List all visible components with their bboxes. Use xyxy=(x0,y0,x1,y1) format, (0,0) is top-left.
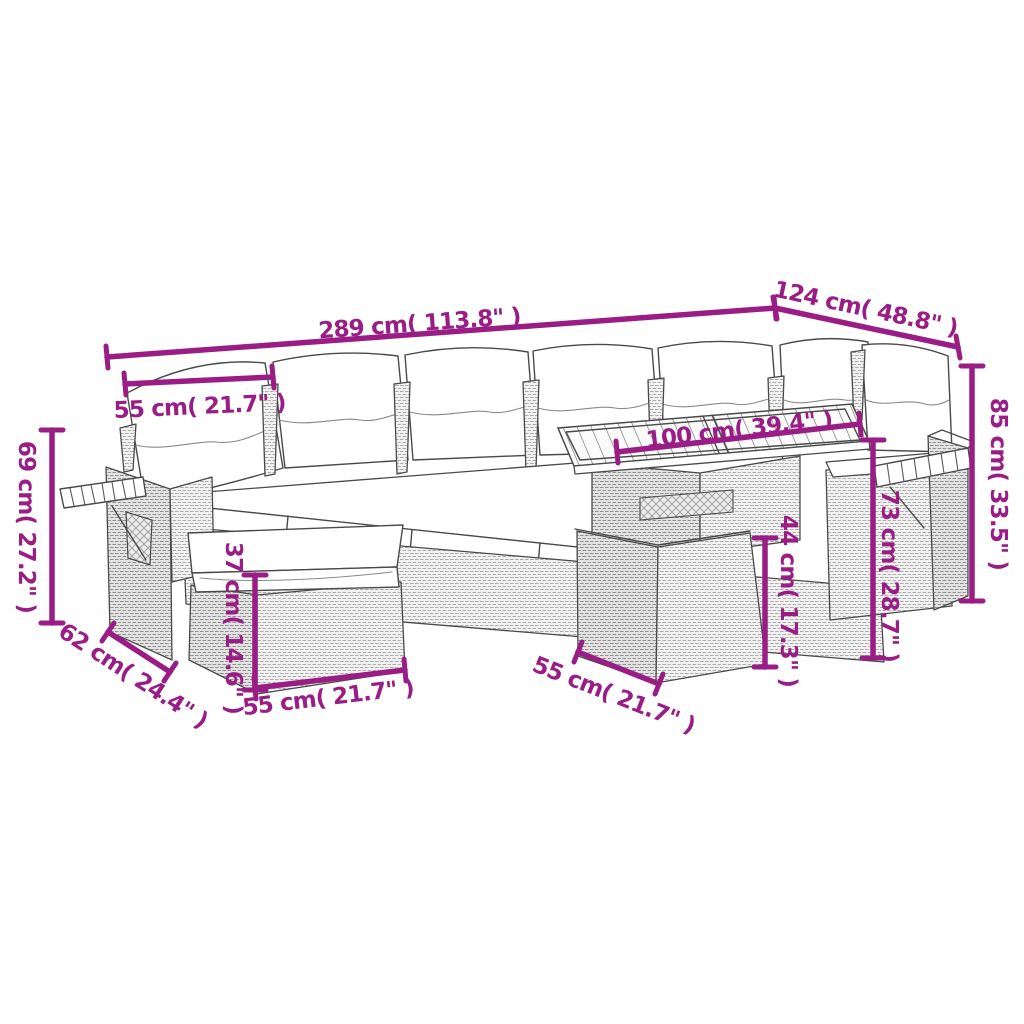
back-cushion xyxy=(862,344,952,452)
dimension-label: 69 cm( 27.2" ) xyxy=(13,441,39,613)
table-base-left xyxy=(577,531,658,683)
dimension-label: 37 cm( 14.6" ) xyxy=(220,542,246,714)
dimension-label: 124 cm( 48.8" ) xyxy=(771,277,960,342)
dimension-label: 289 cm( 113.8" ) xyxy=(318,304,522,345)
dimension-label: 44 cm( 17.3" ) xyxy=(775,515,801,687)
back-cushion xyxy=(273,353,408,468)
left-arm-inset xyxy=(126,512,152,565)
dimension-label: 85 cm( 33.5" ) xyxy=(985,398,1011,570)
product-dimension-diagram: 289 cm( 113.8" ) 124 cm( 48.8" ) 55 cm( … xyxy=(0,0,1024,1024)
back-post xyxy=(120,424,136,472)
back-cushion xyxy=(405,348,536,460)
garden-sofa-set-drawing: 289 cm( 113.8" ) 124 cm( 48.8" ) 55 cm( … xyxy=(0,0,1024,1024)
back-post xyxy=(394,382,410,474)
table-base-right xyxy=(656,533,766,683)
dimension-left-arm-height: 69 cm( 27.2" ) xyxy=(13,430,63,623)
dimension-label: 73 cm( 28.7" ) xyxy=(876,490,902,662)
back-post xyxy=(523,380,539,472)
